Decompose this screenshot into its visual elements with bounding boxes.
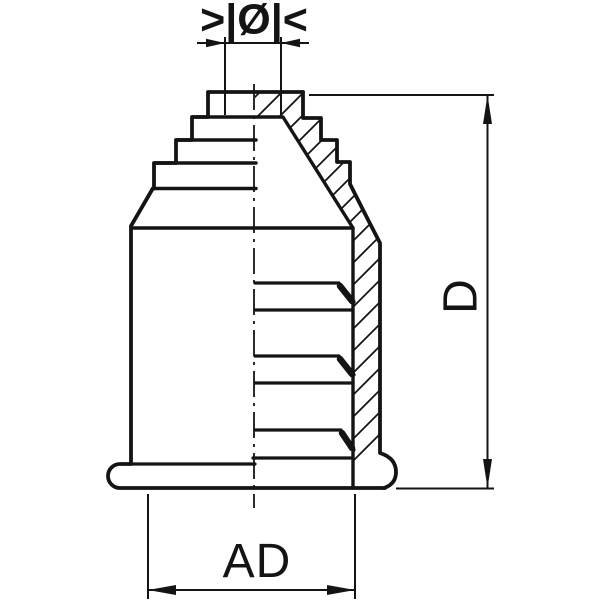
technical-drawing-canvas: >|Ø|< D AD <box>0 0 600 600</box>
top-diameter-label: >|Ø|< <box>200 0 308 44</box>
cap-section-drawing: >|Ø|< D AD <box>0 0 600 600</box>
bottom-ad-label: AD <box>223 535 292 588</box>
height-d-label: D <box>435 278 488 314</box>
drawing-background <box>0 0 600 600</box>
